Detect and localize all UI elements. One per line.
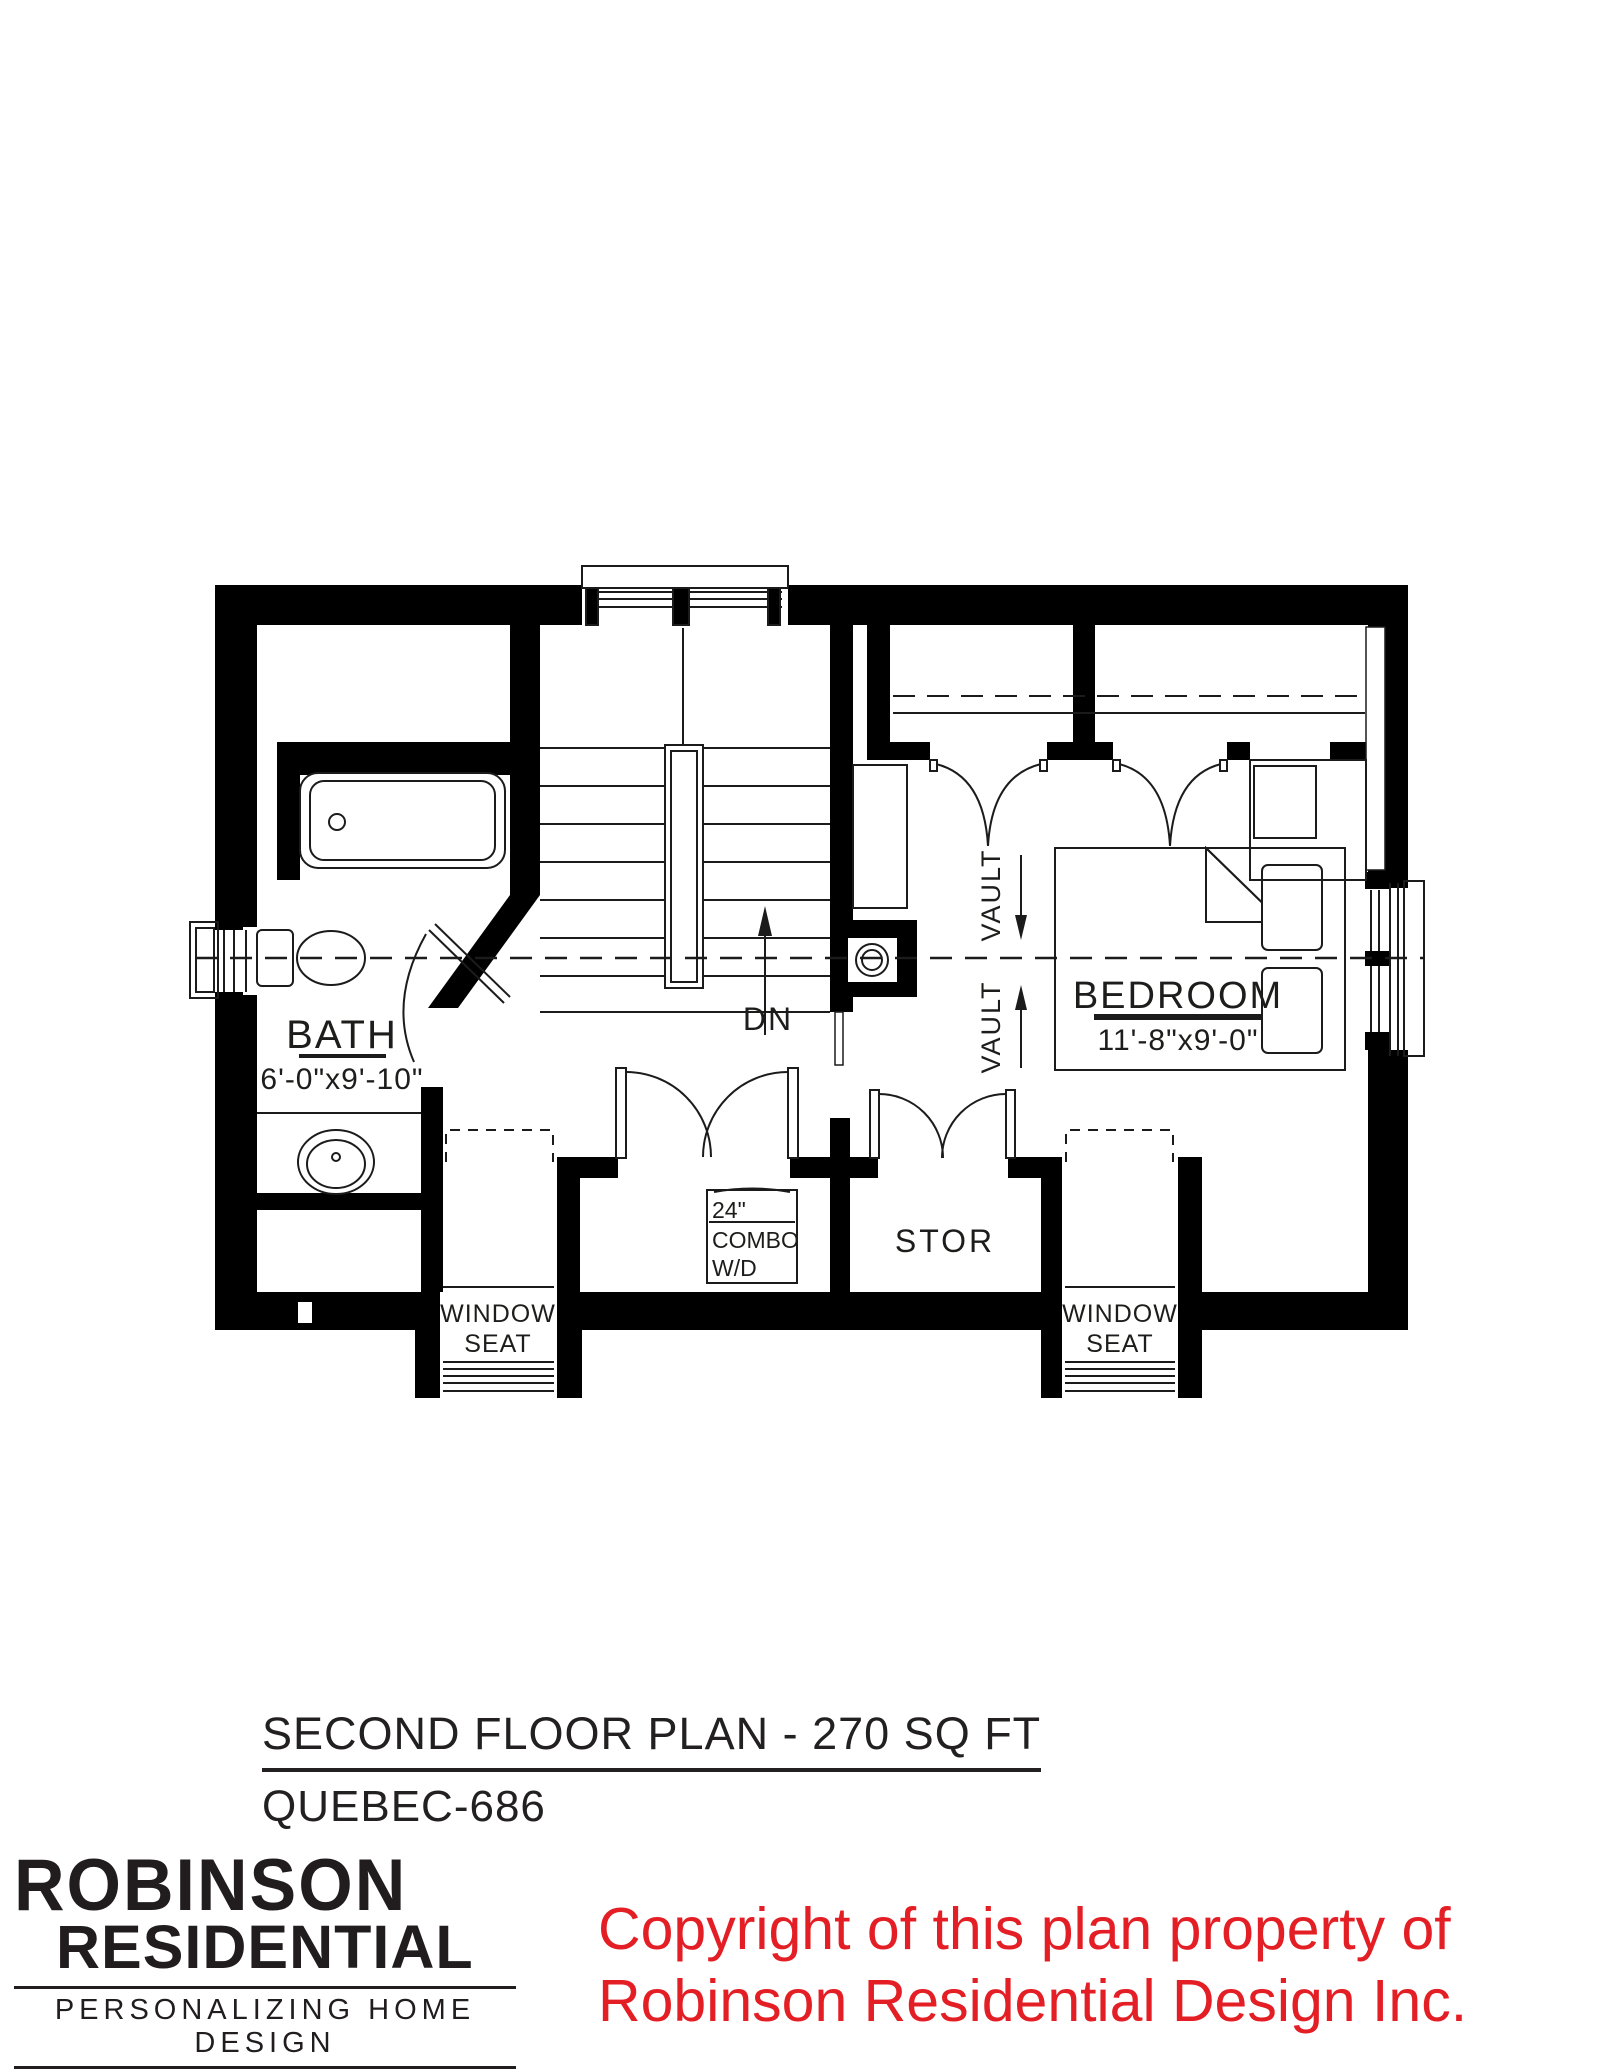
vault-lower-label: VAULT (976, 980, 1006, 1073)
window-seat-left-line1: WINDOW (440, 1300, 556, 1328)
wd-label-wd: W/D (712, 1255, 757, 1281)
staircase (540, 628, 830, 1012)
window-seat-right-window (1065, 1362, 1175, 1391)
bath-window (190, 922, 246, 998)
vault-arrows (1015, 855, 1027, 1068)
laundry-double-door (616, 1068, 798, 1158)
wd-label-size: 24" (712, 1197, 746, 1223)
vault-upper-label: VAULT (976, 848, 1006, 941)
bedroom-window (1371, 881, 1424, 1056)
title-block: SECOND FLOOR PLAN - 270 SQ FT QUEBEC-686 (262, 1708, 1041, 1832)
robinson-residential-logo: ROBINSON RESIDENTIAL PERSONALIZING HOME … (14, 1850, 516, 2069)
bedroom-closet-doors (930, 760, 1227, 846)
window-seat-left-line2: SEAT (464, 1330, 531, 1358)
window-seat-right-line1: WINDOW (1062, 1300, 1178, 1328)
bath-label: BATH (286, 1013, 398, 1057)
sink-fixture (257, 1113, 421, 1194)
logo-line2: RESIDENTIAL (56, 1917, 516, 1978)
wd-label-combo: COMBO (712, 1227, 799, 1253)
window-seat-right-line2: SEAT (1086, 1330, 1153, 1358)
hall-builtin-cabinet (853, 765, 907, 908)
window-seat-left-window (443, 1362, 554, 1391)
down-label: DN (743, 1001, 793, 1037)
bath-dims: 6'-0"x9'-10" (260, 1063, 423, 1096)
right-wall-closet-channel (1366, 627, 1385, 870)
copyright-notice: Copyright of this plan property of Robin… (598, 1894, 1467, 2038)
copyright-line1: Copyright of this plan property of (598, 1894, 1467, 1966)
logo-line1: ROBINSON (14, 1850, 516, 1920)
logo-tagline: PERSONALIZING HOME DESIGN (14, 1986, 516, 2069)
storage-double-door (870, 1090, 1015, 1158)
bedroom-dims: 11'-8"x9'-0" (1098, 1024, 1259, 1057)
vault-lines (893, 696, 1365, 713)
plan-title: SECOND FLOOR PLAN - 270 SQ FT (262, 1708, 1041, 1772)
floor-plan-drawing: BATH 6'-0"x9'-10" BEDROOM 11'-8"x9'-0" S… (0, 0, 1600, 1500)
floor-plan-page: BATH 6'-0"x9'-10" BEDROOM 11'-8"x9'-0" S… (0, 0, 1600, 2071)
bathtub-fixture (300, 773, 505, 868)
plan-number: QUEBEC-686 (262, 1782, 1041, 1832)
bedroom-label: BEDROOM (1073, 975, 1283, 1017)
copyright-line2: Robinson Residential Design Inc. (598, 1966, 1467, 2038)
storage-label: STOR (895, 1223, 995, 1259)
stair-dormer-window (582, 566, 788, 625)
